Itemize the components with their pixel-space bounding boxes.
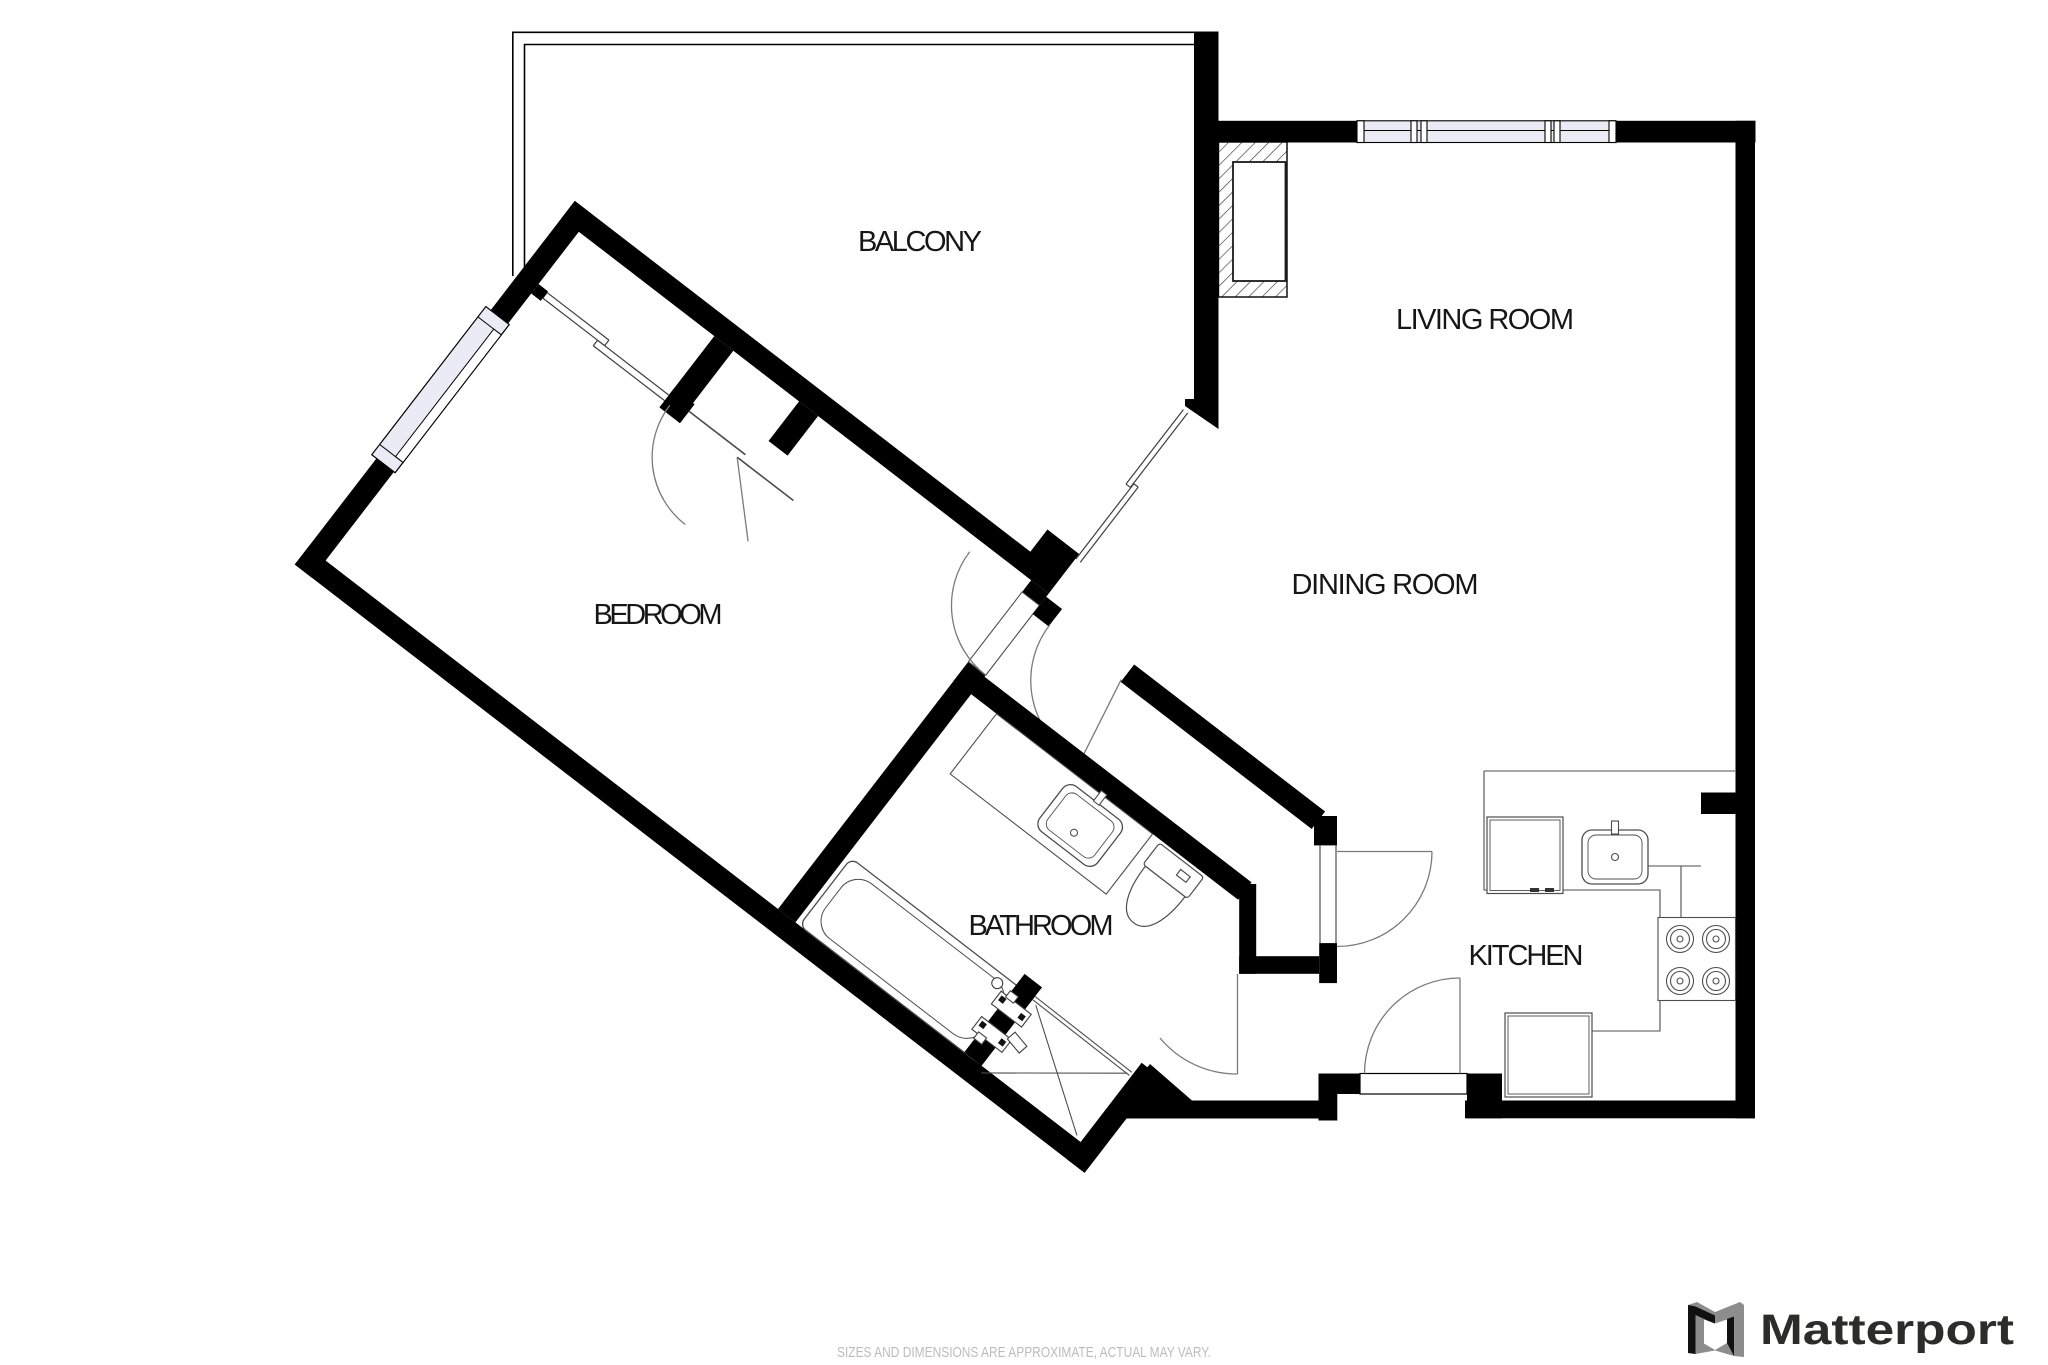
svg-text:BALCONY: BALCONY <box>858 226 982 258</box>
svg-text:SIZES AND DIMENSIONS ARE APPRO: SIZES AND DIMENSIONS ARE APPROXIMATE, AC… <box>837 1344 1211 1361</box>
svg-text:Matterport: Matterport <box>1760 1306 2014 1354</box>
svg-text:KITCHEN: KITCHEN <box>1469 940 1584 972</box>
svg-text:BATHROOM: BATHROOM <box>969 910 1114 942</box>
svg-text:LIVING ROOM: LIVING ROOM <box>1396 304 1574 336</box>
svg-text:DINING ROOM: DINING ROOM <box>1292 569 1479 601</box>
svg-text:BEDROOM: BEDROOM <box>594 599 723 631</box>
